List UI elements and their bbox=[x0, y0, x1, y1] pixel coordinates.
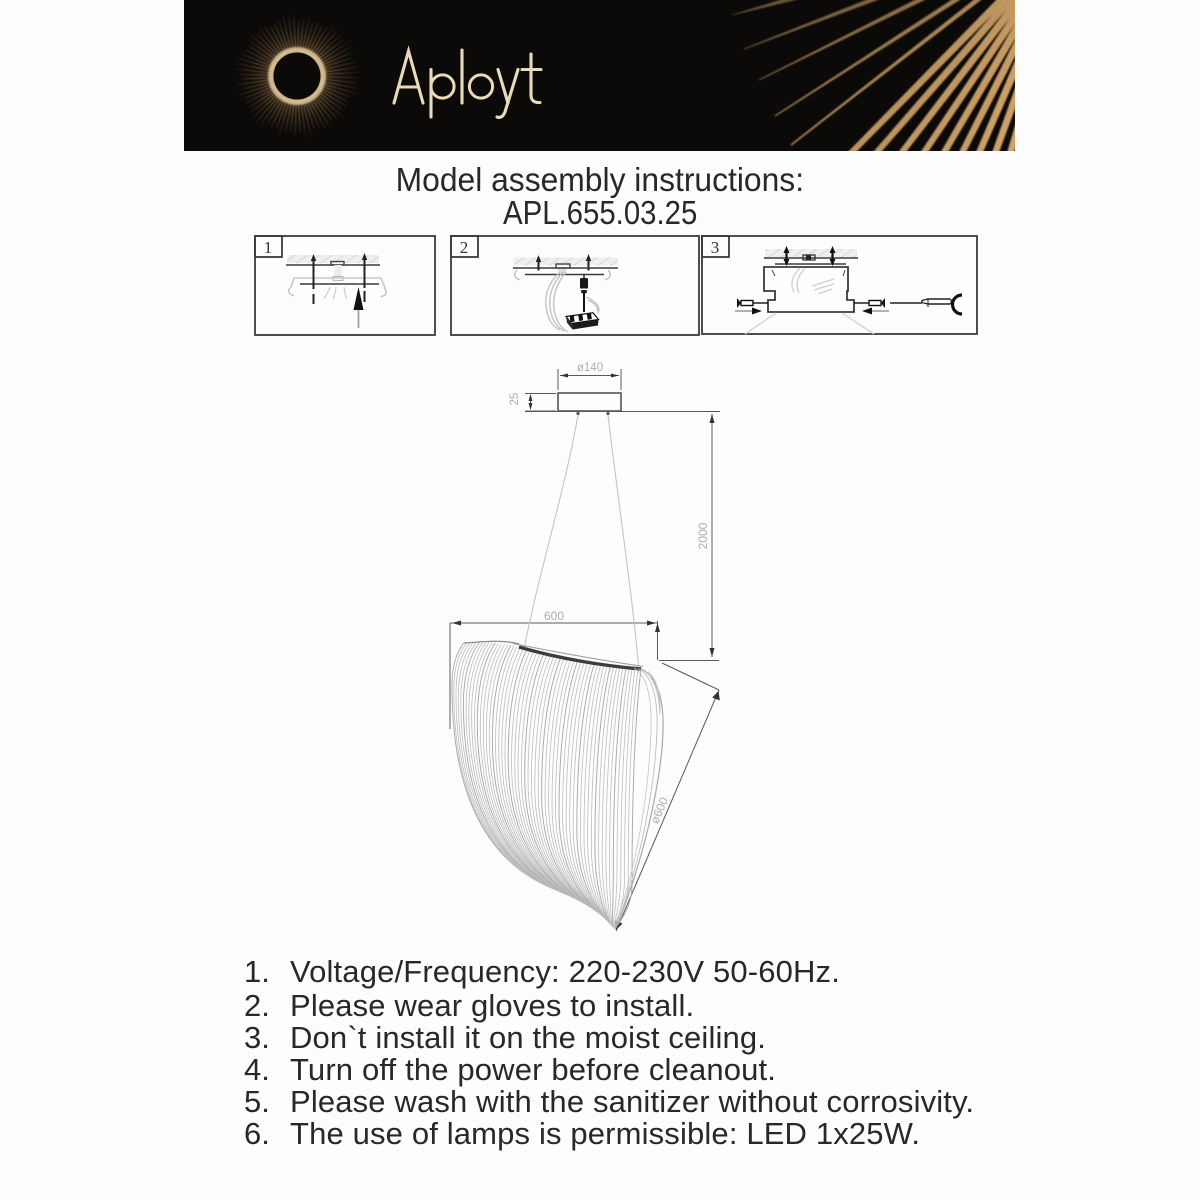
svg-text:2: 2 bbox=[460, 238, 469, 257]
svg-text:2000: 2000 bbox=[696, 522, 710, 549]
svg-text:ø140: ø140 bbox=[577, 362, 603, 374]
svg-text:600: 600 bbox=[544, 609, 564, 623]
svg-text:3: 3 bbox=[711, 238, 720, 257]
svg-text:25: 25 bbox=[509, 393, 521, 406]
svg-text:1: 1 bbox=[264, 238, 273, 257]
